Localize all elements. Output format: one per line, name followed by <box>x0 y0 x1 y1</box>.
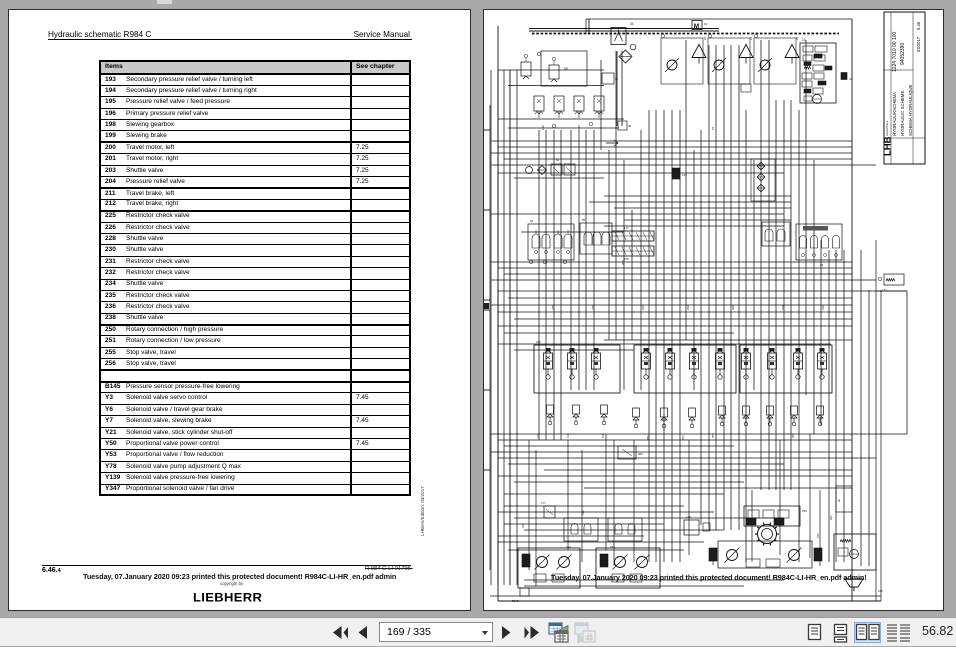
svg-text:LHB: LHB <box>883 136 894 156</box>
svg-text:19: 19 <box>704 22 708 26</box>
svg-text:34: 34 <box>630 22 634 26</box>
svg-text:231: 231 <box>641 305 645 310</box>
svg-text:195: 195 <box>878 589 883 593</box>
svg-text:03/2017: 03/2017 <box>916 36 921 52</box>
svg-text:M: M <box>694 23 699 30</box>
svg-text:94052390: 94052390 <box>900 43 906 65</box>
svg-text:24: 24 <box>703 36 707 40</box>
svg-text:212: 212 <box>581 510 585 515</box>
svg-text:61: 61 <box>530 219 534 223</box>
svg-text:234: 234 <box>781 305 785 310</box>
svg-text:198: 198 <box>577 125 581 130</box>
svg-text:228: 228 <box>591 305 595 310</box>
svg-text:36: 36 <box>628 124 632 128</box>
svg-text:52: 52 <box>556 158 560 162</box>
svg-text:226: 226 <box>731 305 735 310</box>
svg-text:117: 117 <box>536 433 540 438</box>
svg-text:55: 55 <box>582 218 586 222</box>
svg-text:1224 7010 00 100: 1224 7010 00 100 <box>892 31 898 72</box>
svg-text:256: 256 <box>791 433 795 438</box>
svg-text:201: 201 <box>829 515 833 520</box>
svg-text:250: 250 <box>646 435 650 440</box>
svg-text:47: 47 <box>849 77 853 81</box>
svg-text:225: 225 <box>551 305 555 310</box>
svg-text:HYDRAULIKSCHEMA: HYDRAULIKSCHEMA <box>892 92 897 136</box>
svg-text:211: 211 <box>521 523 525 528</box>
svg-text:Datum/Name: Datum/Name <box>885 120 889 136</box>
svg-text:177: 177 <box>541 501 546 505</box>
svg-text:2A: 2A <box>795 36 799 40</box>
svg-text:251: 251 <box>681 435 685 440</box>
svg-text:177: 177 <box>624 226 629 230</box>
svg-text:SCHEMA HYDRAULIQUE: SCHEMA HYDRAULIQUE <box>908 84 913 136</box>
svg-text:Tuesday, 07.January 2020 09:23: Tuesday, 07.January 2020 09:23 printed t… <box>551 573 867 582</box>
svg-text:230: 230 <box>802 509 807 513</box>
svg-text:149: 149 <box>682 173 687 177</box>
svg-text:203: 203 <box>621 260 625 265</box>
svg-text:199: 199 <box>541 125 545 130</box>
svg-text:58: 58 <box>564 67 568 71</box>
svg-text:172: 172 <box>882 288 887 292</box>
svg-text:255: 255 <box>711 433 715 438</box>
svg-text:118: 118 <box>536 340 541 344</box>
svg-text:HYDRAULIC SCHEME: HYDRAULIC SCHEME <box>900 91 905 136</box>
svg-text:16: 16 <box>820 263 824 267</box>
svg-text:236: 236 <box>821 305 825 310</box>
svg-text:13: 13 <box>802 38 806 42</box>
svg-text:6.46: 6.46 <box>916 21 921 30</box>
svg-text:57: 57 <box>711 126 715 130</box>
svg-text:165: 165 <box>816 533 820 538</box>
svg-text:148: 148 <box>686 515 691 519</box>
svg-text:23: 23 <box>749 36 753 40</box>
svg-text:232: 232 <box>686 305 690 310</box>
svg-text:206: 206 <box>638 452 643 456</box>
svg-text:60: 60 <box>837 498 841 502</box>
svg-text:B145: B145 <box>512 599 519 603</box>
svg-text:115: 115 <box>601 433 605 438</box>
svg-text:116: 116 <box>566 433 570 438</box>
svg-text:200: 200 <box>711 560 715 565</box>
